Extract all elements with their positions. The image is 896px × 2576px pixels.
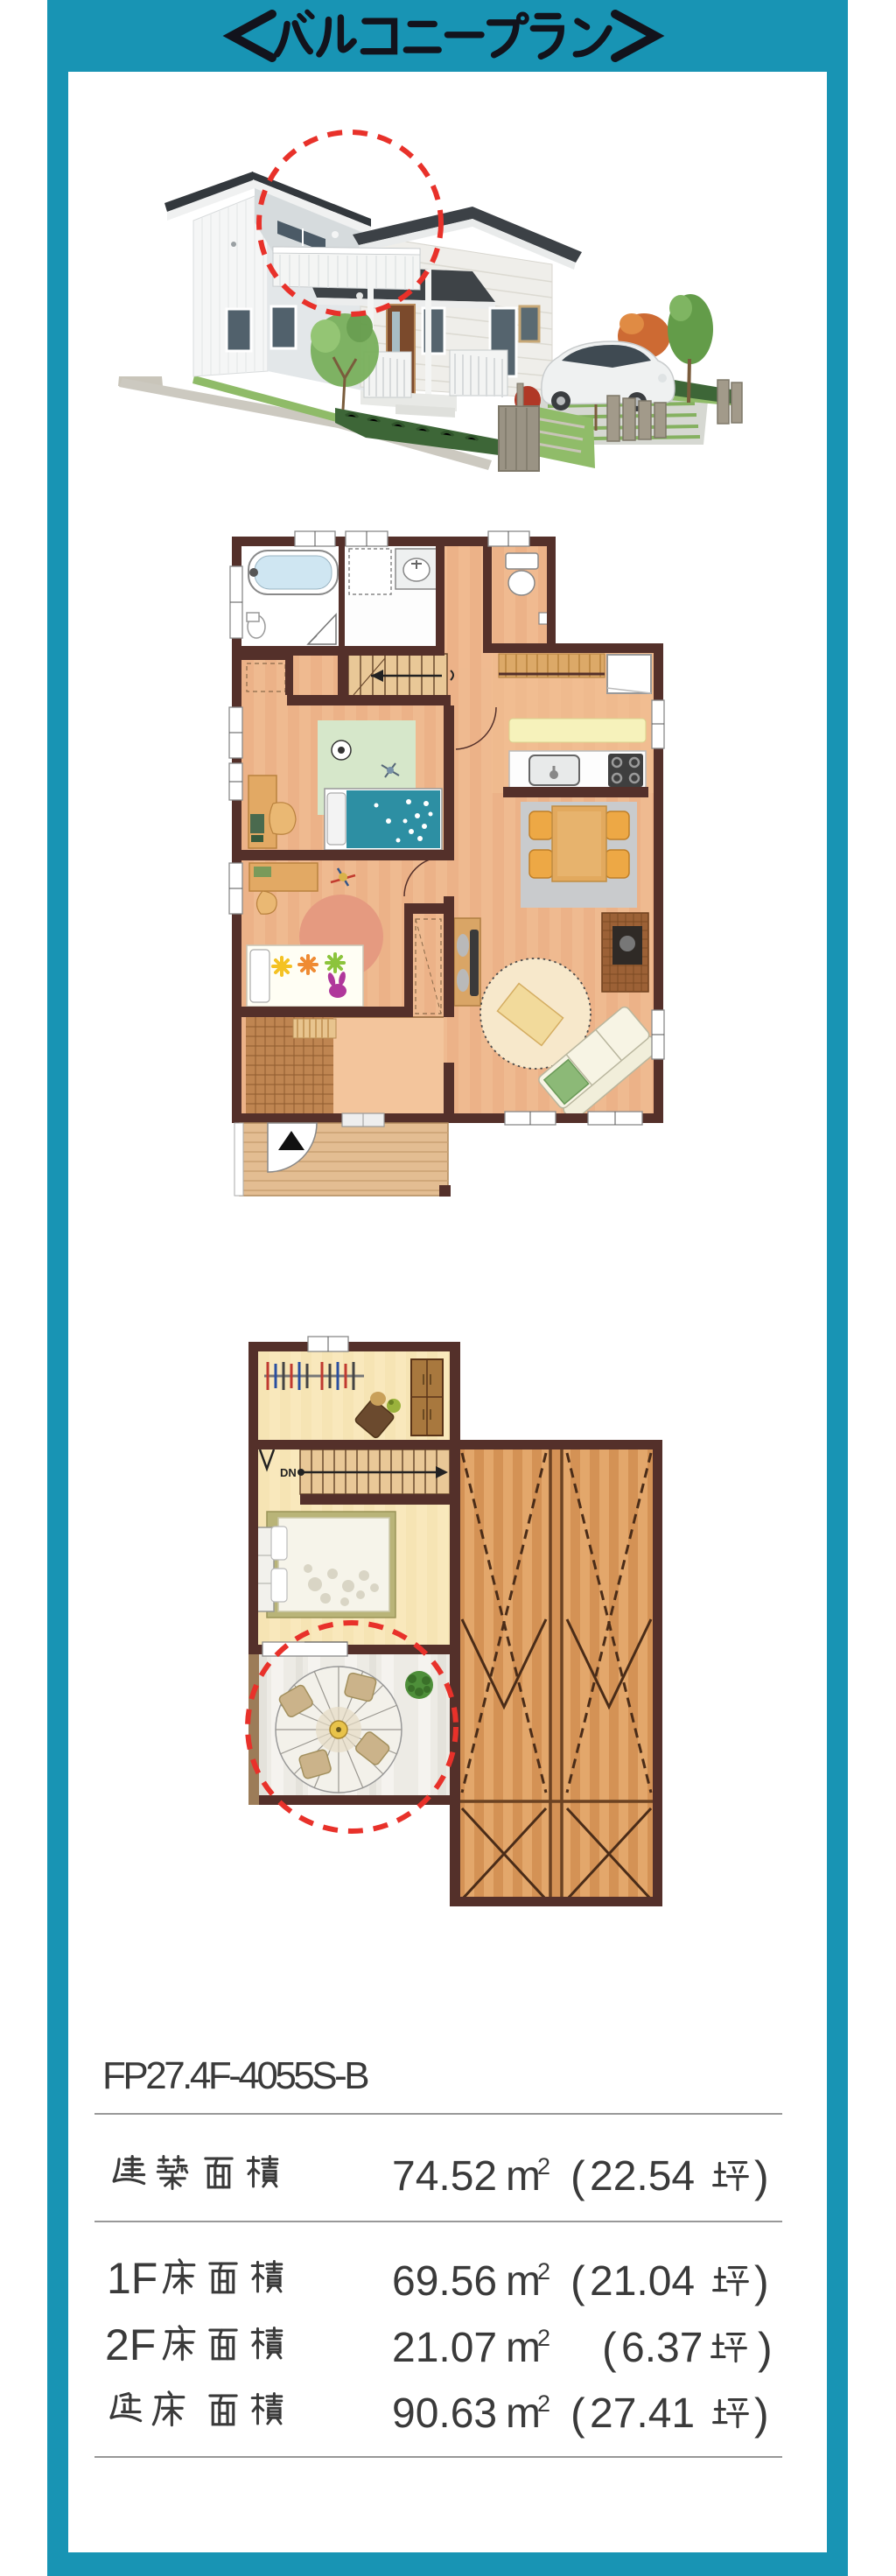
svg-text:): ) [754,2390,769,2439]
svg-text:2F: 2F [105,2320,156,2369]
svg-text:90.63: 90.63 [392,2390,497,2437]
svg-text:m: m [506,2153,541,2200]
svg-text:(: ( [570,2390,585,2439]
svg-text:(: ( [602,2324,617,2373]
svg-text:22.54: 22.54 [590,2153,695,2200]
svg-text:): ) [754,2257,769,2306]
svg-text:27.41: 27.41 [590,2390,695,2437]
svg-text:69.56: 69.56 [392,2258,497,2305]
svg-text:m: m [506,2258,541,2305]
svg-text:m: m [506,2390,541,2437]
svg-text:2: 2 [537,2390,550,2417]
svg-text:(: ( [570,2152,585,2201]
svg-text:6.37: 6.37 [621,2325,703,2371]
svg-text:FP27.4F-4055S-B: FP27.4F-4055S-B [102,2054,368,2097]
svg-text:1F: 1F [107,2254,157,2303]
svg-text:DN: DN [280,1466,297,1479]
svg-text:21.07: 21.07 [392,2325,497,2371]
svg-text:2: 2 [537,2153,550,2179]
svg-text:21.04: 21.04 [590,2258,695,2305]
svg-text:m: m [506,2325,541,2371]
svg-text:2: 2 [537,2325,550,2351]
svg-text:): ) [754,2152,769,2201]
svg-text:2: 2 [537,2258,550,2285]
svg-text:): ) [758,2324,773,2373]
svg-text:(: ( [570,2257,585,2306]
svg-text:74.52: 74.52 [392,2153,497,2200]
